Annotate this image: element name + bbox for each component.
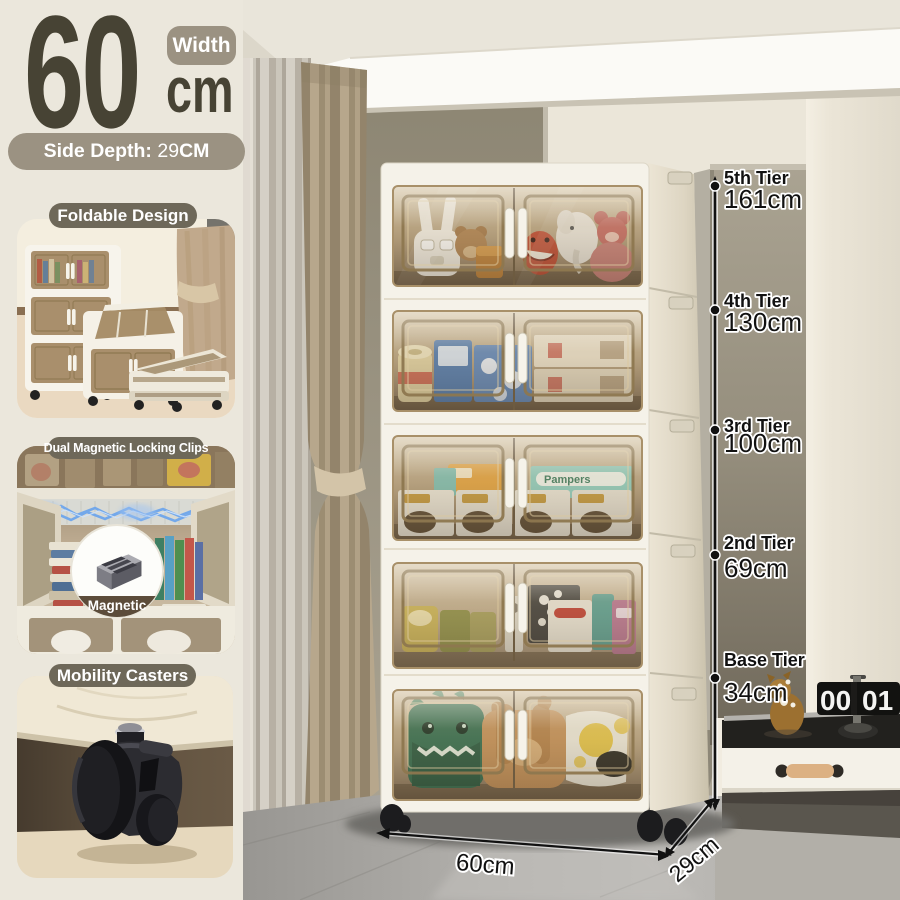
svg-text:69cm: 69cm xyxy=(724,553,788,583)
svg-text:00: 00 xyxy=(820,685,851,716)
svg-text:60cm: 60cm xyxy=(455,849,516,881)
svg-text:100cm: 100cm xyxy=(724,428,802,458)
svg-text:Base Tier: Base Tier xyxy=(724,650,805,670)
svg-text:01: 01 xyxy=(862,685,893,716)
svg-text:34cm: 34cm xyxy=(724,677,788,707)
svg-text:Magnetic: Magnetic xyxy=(88,598,147,613)
svg-text:2nd Tier: 2nd Tier xyxy=(724,533,794,553)
svg-text:161cm: 161cm xyxy=(724,184,802,214)
svg-text:130cm: 130cm xyxy=(724,307,802,337)
